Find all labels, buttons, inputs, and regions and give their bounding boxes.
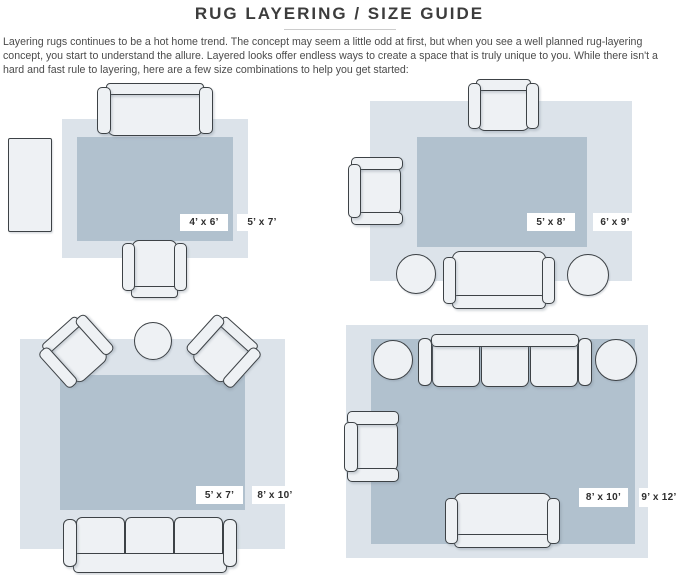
inner-rug-size-label: 5’ x 7’ (196, 486, 243, 504)
sofa-back (431, 334, 579, 347)
inner-rug-size-label: 5’ x 8’ (527, 213, 575, 231)
seat-cushion (432, 345, 480, 387)
seat-cushion (76, 517, 125, 555)
console-table (8, 138, 52, 232)
seat-cushion (530, 345, 578, 387)
chair-back (348, 164, 361, 218)
sofa-back (73, 553, 227, 573)
sofa-bottom (63, 517, 237, 573)
chair-arm-left (122, 243, 135, 291)
pouf-left (396, 254, 436, 294)
sofa-back (452, 295, 546, 309)
chair-back (476, 79, 531, 91)
intro-text: Layering rugs continues to be a hot home… (3, 36, 676, 77)
armchair-left (348, 157, 404, 225)
pouf-right (595, 339, 637, 381)
sofa-arm-right (199, 87, 213, 134)
pouf-right (567, 254, 609, 296)
chair-seat (354, 421, 398, 472)
sofa-seat (452, 251, 546, 299)
outer-rug-size-label: 9’ x 12’ (639, 488, 679, 507)
outer-rug-size-label: 8’ x 10’ (252, 486, 298, 504)
page-title: RUG LAYERING / SIZE GUIDE (0, 0, 679, 24)
sofa-seat (107, 91, 203, 136)
pouf-top (567, 254, 609, 296)
sofa-back (454, 534, 551, 548)
armchair-top (468, 79, 539, 131)
outer-rug-size-label: 6’ x 9’ (593, 213, 637, 231)
chair-seat (357, 166, 401, 216)
inner-rug-size-label: 4’ x 6’ (180, 214, 228, 231)
sofa-seat (454, 493, 551, 540)
armchair-bottom (122, 240, 187, 298)
table-top (8, 138, 52, 232)
sofa-arm-left (97, 87, 111, 134)
loveseat-bottom (445, 493, 560, 548)
chair-arm-right (526, 83, 539, 129)
table-top (134, 322, 172, 360)
chair-seat (477, 86, 530, 131)
sofa-arm-right (223, 519, 237, 567)
sofa-arm-right (578, 338, 592, 386)
title-divider (284, 29, 396, 30)
pouf-left (373, 340, 413, 380)
chair-back (344, 422, 358, 472)
inner-rug-size-label: 8’ x 10’ (579, 488, 628, 507)
sofa-arm-left (63, 519, 77, 567)
round-side-table (134, 322, 172, 360)
sofa-top (418, 334, 592, 388)
pouf-top (595, 339, 637, 381)
outer-rug-size-label: 5’ x 7’ (237, 214, 287, 231)
chair-arm-right (174, 243, 187, 291)
sofa-bottom (443, 251, 555, 309)
sofa-back (106, 83, 204, 95)
sofa-arm-left (443, 257, 456, 304)
loveseat-top (97, 83, 213, 137)
chair-seat (132, 240, 177, 290)
seat-cushion (481, 345, 529, 387)
pouf-top (396, 254, 436, 294)
seat-cushion (125, 517, 174, 555)
sofa-arm-left (418, 338, 432, 386)
chair-back (131, 286, 178, 298)
seat-cushion (174, 517, 223, 555)
sofa-arm-right (547, 498, 560, 544)
sofa-arm-left (445, 498, 458, 544)
chair-arm-left (468, 83, 481, 129)
armchair-left (344, 411, 400, 482)
rug-size-guide-page: RUG LAYERING / SIZE GUIDE Layering rugs … (0, 0, 679, 575)
sofa-arm-right (542, 257, 555, 304)
pouf-top (373, 340, 413, 380)
